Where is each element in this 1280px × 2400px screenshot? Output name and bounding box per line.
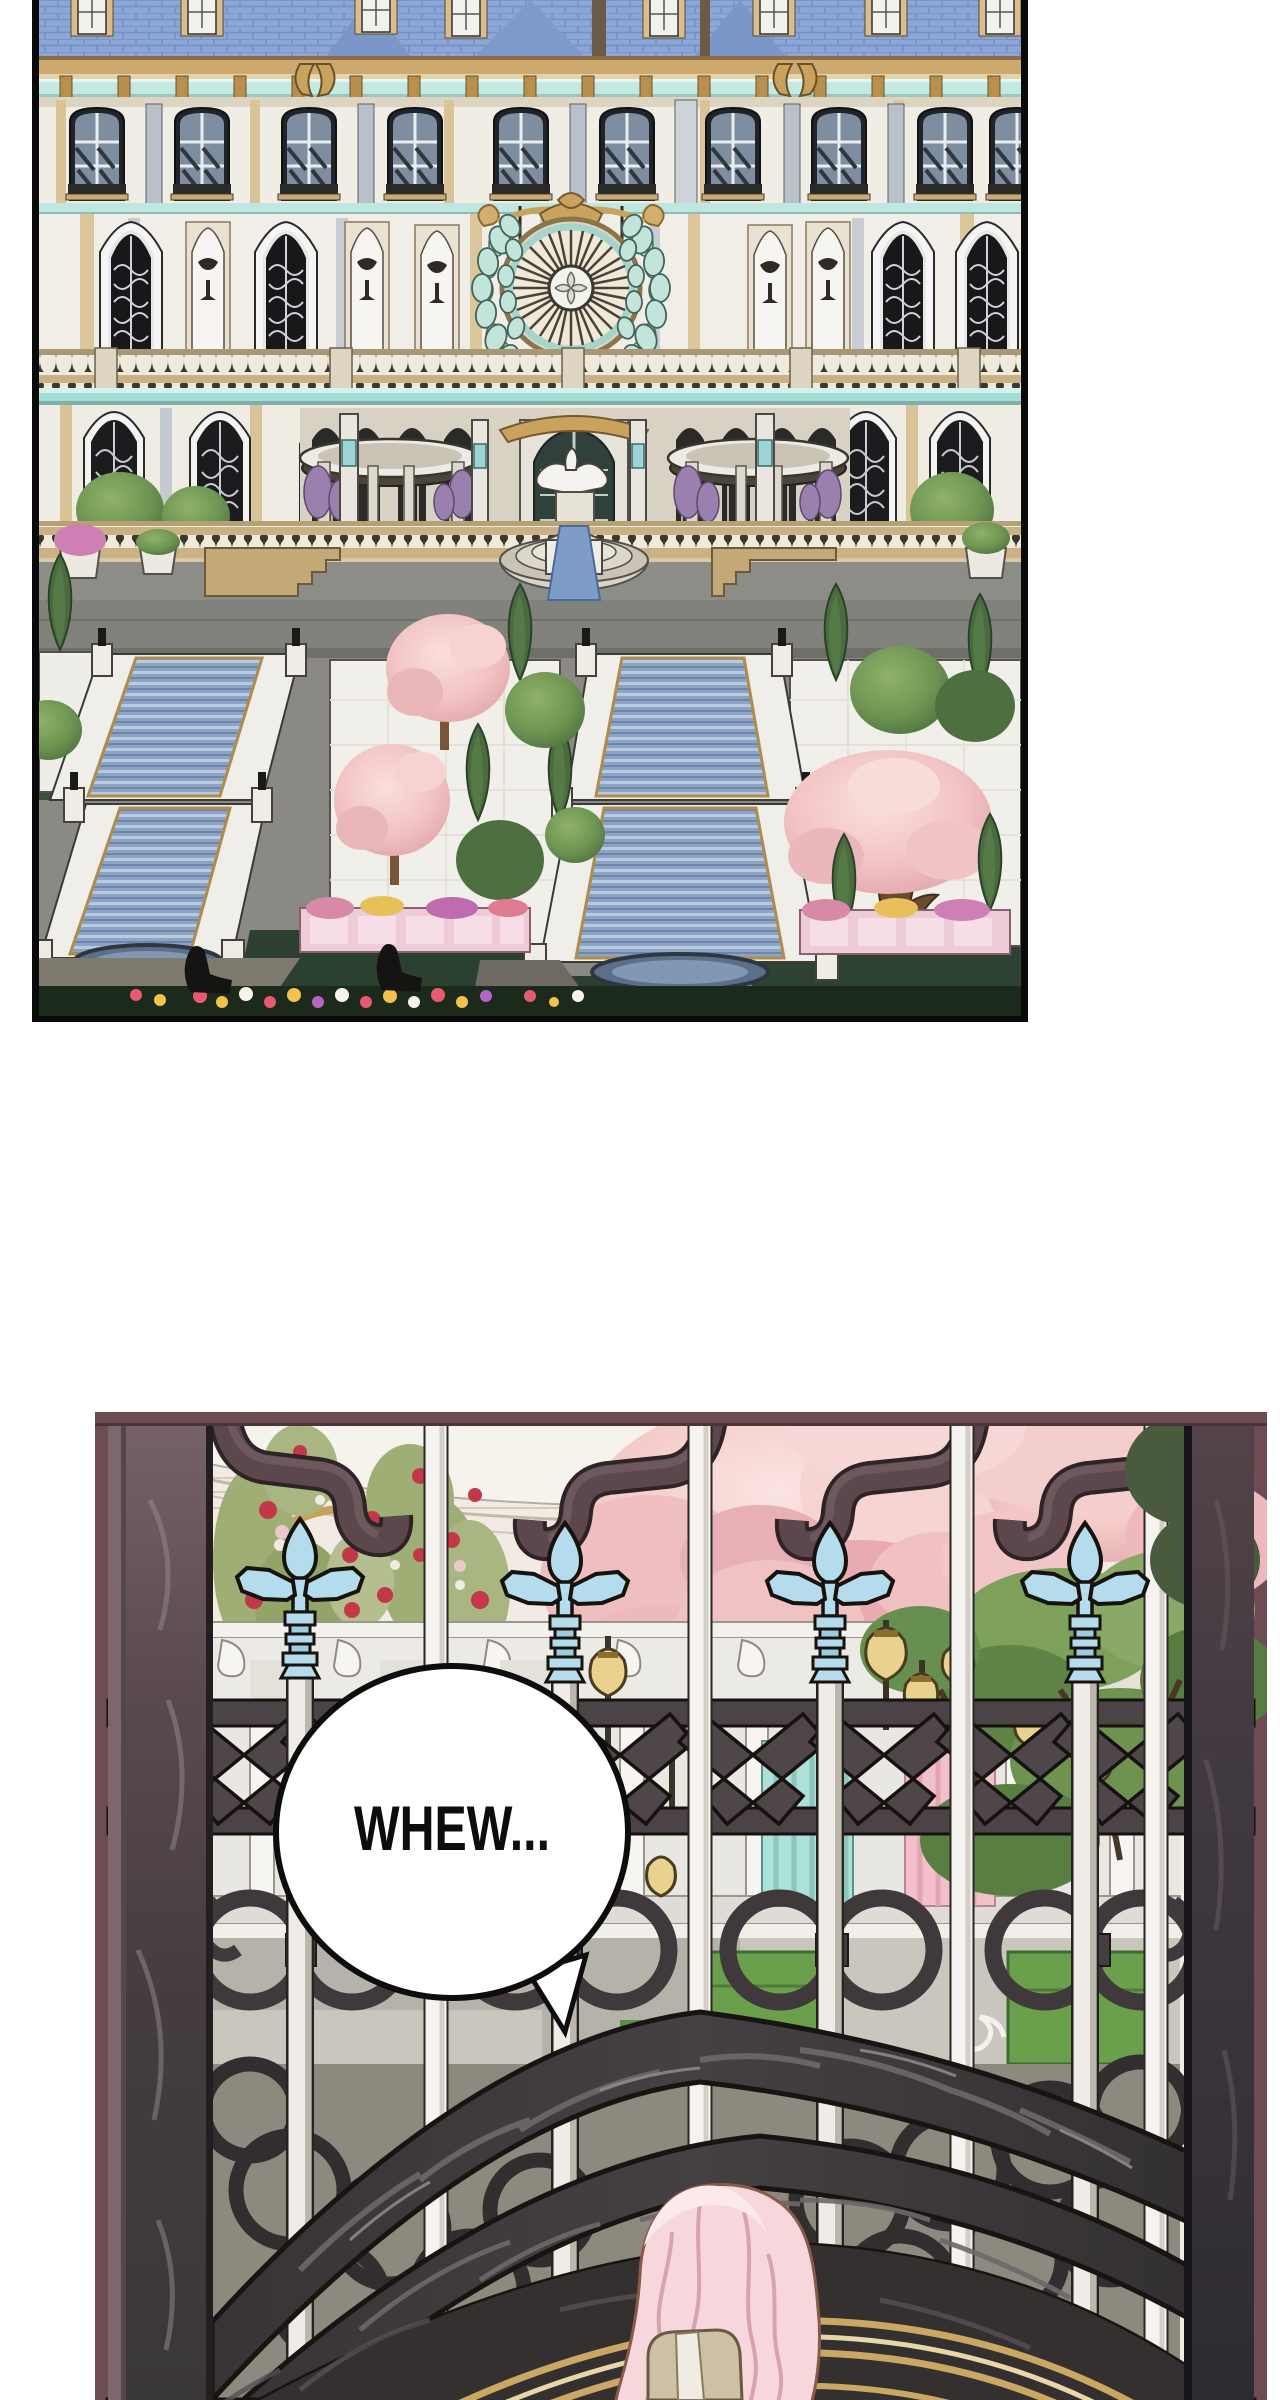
svg-text:WHEW...: WHEW... xyxy=(354,1794,550,1864)
